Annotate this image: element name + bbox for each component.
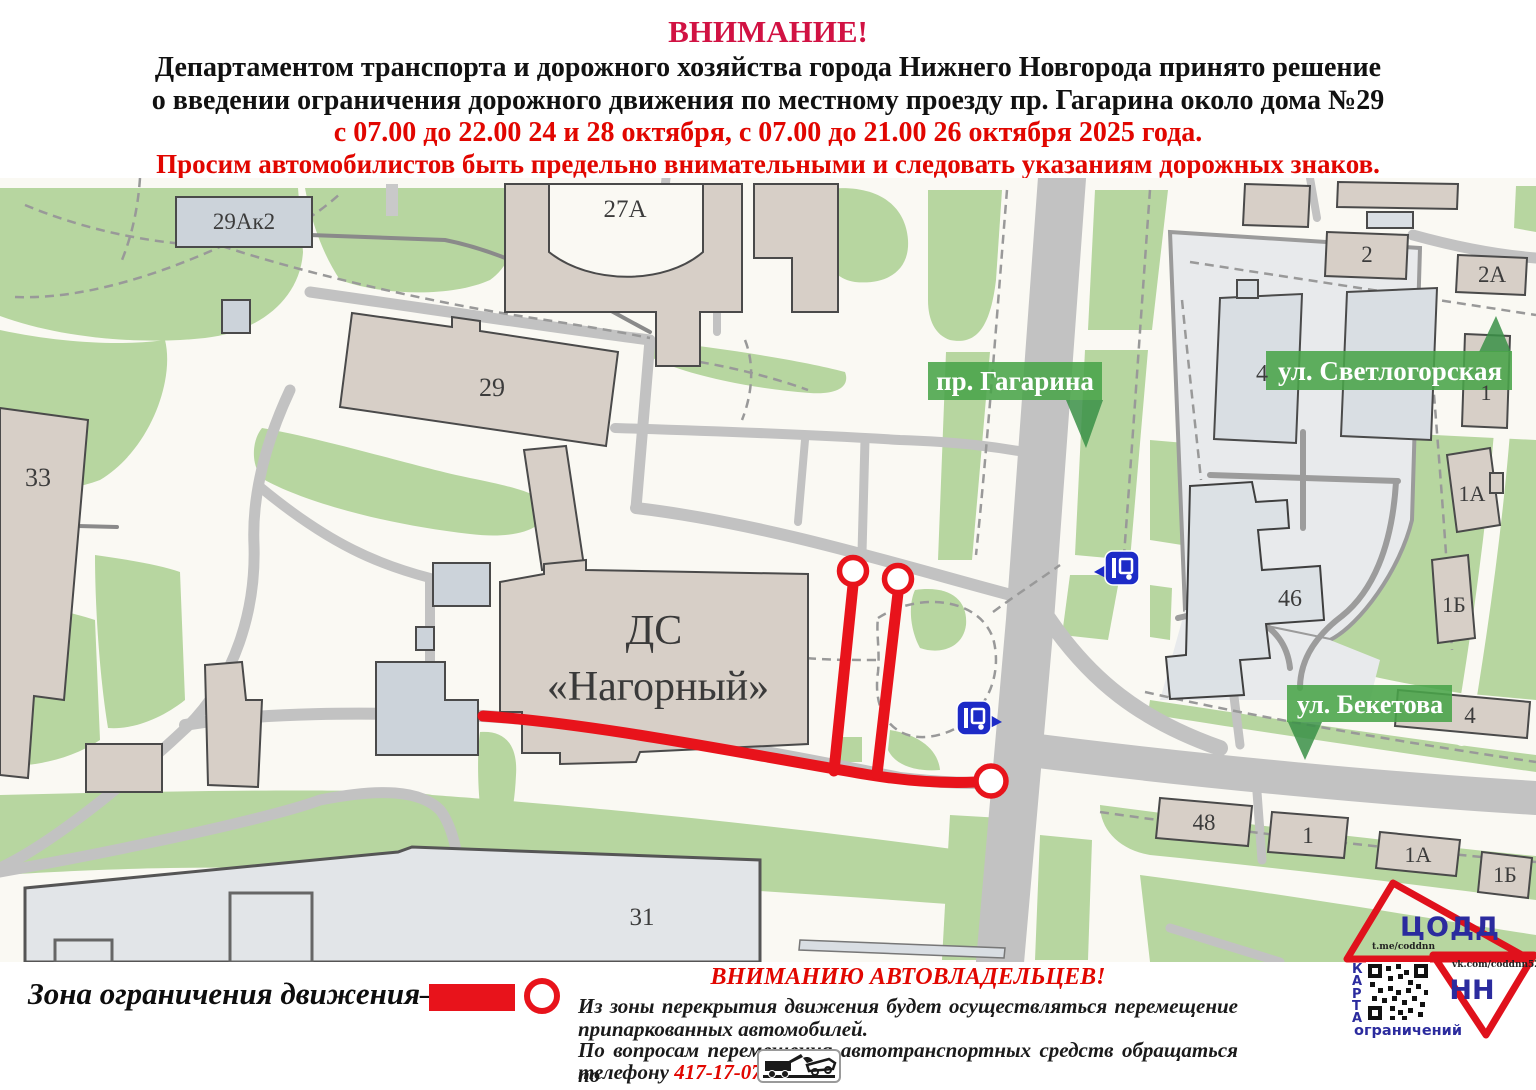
building-label: 2А [1478,262,1507,287]
palace-label-line1: ДС [626,608,683,654]
tow-truck-icon [757,1049,841,1083]
logo-org-name: ЦОДД [1390,912,1510,943]
codd-logo: ЦОДД t.me/coddnn vk.com/coddnn52 НН КАРТ… [1330,872,1536,1047]
header-line-3: с 07.00 до 22.00 24 и 28 октября, с 07.0… [0,117,1536,149]
building-1a-bottom: 1А [1376,832,1460,876]
building-label: 33 [25,463,51,492]
small-structure [386,184,398,216]
building-label: 46 [1278,586,1302,612]
building-label: 1Б [1442,592,1466,617]
building-label: 2 [1361,242,1373,267]
building-label: 31 [630,904,655,931]
header-attention: ВНИМАНИЕ! [0,14,1536,50]
palace-label-line2: «Нагорный» [547,664,769,710]
small-building [1337,182,1458,209]
building-label: 1А [1459,481,1486,506]
small-building [1237,280,1258,298]
building-label: 1 [1481,380,1492,405]
building-label: 27А [603,196,646,223]
building-2: 2 [1325,232,1408,279]
logo-city-name: НН [1432,975,1512,1006]
building-label: 1А [1405,842,1432,867]
announcement-poster: ВНИМАНИЕ! Департаментом транспорта и дор… [0,0,1536,1090]
legend-restriction-line-swatch [429,984,515,1011]
header-line-1: Департаментом транспорта и дорожного хоз… [0,52,1536,84]
building-1-bottom: 1 [1268,812,1348,858]
building-48: 48 [1156,798,1252,846]
notice-title: ВНИМАНИЮ АВТОВЛАДЕЛЬЦЕВ! [578,964,1238,991]
small-building [222,300,250,333]
logo-qr-caption-bottom: ограничений [1354,1023,1462,1039]
building-label: 1 [1302,823,1314,848]
small-building [1367,212,1413,228]
legend-zone-label: Зона ограничения движения– [28,976,436,1012]
phone-number: 417-17-07 [674,1060,762,1084]
building-label: 29 [479,373,505,402]
closure-point-icon [840,558,867,585]
small-building [86,744,162,792]
city-map: 29Ак2 27А 29 33 ДС «Нагорный» [0,178,1536,962]
small-building [416,627,434,650]
logo-qr-caption-vertical: КАРТА [1352,964,1366,1026]
building-2a: 2А [1456,255,1527,295]
closure-point-icon [976,766,1006,796]
logo-telegram-link: t.me/coddnn [1372,942,1435,952]
notice-line-1: Из зоны перекрытия движения будет осущес… [578,994,1238,1019]
building-label: 29Ак2 [213,209,275,234]
closure-point-icon [885,566,912,593]
qr-code [1366,962,1430,1022]
street-label: пр. Гагарина [936,366,1094,396]
street-label: ул. Светлогорская [1278,356,1502,386]
building-29ak2: 29Ак2 [176,197,312,247]
phone-prefix: телефону [578,1060,669,1084]
building-label: 4 [1256,361,1268,387]
building-label: 4 [1464,703,1476,728]
legend-closure-point-swatch [524,978,560,1014]
logo-vk-link: vk.com/coddnn52 [1452,960,1536,970]
small-building [433,563,490,606]
building-1b-right: 1Б [1432,555,1475,643]
small-building [1243,184,1310,227]
header-line-2: о введении ограничения дорожного движени… [0,85,1536,117]
header-line-4: Просим автомобилистов быть предельно вни… [0,149,1536,180]
notice-line-4: телефону 417-17-07 [578,1060,1238,1085]
building-label: 48 [1193,810,1216,835]
street-label: ул. Бекетова [1297,690,1443,719]
